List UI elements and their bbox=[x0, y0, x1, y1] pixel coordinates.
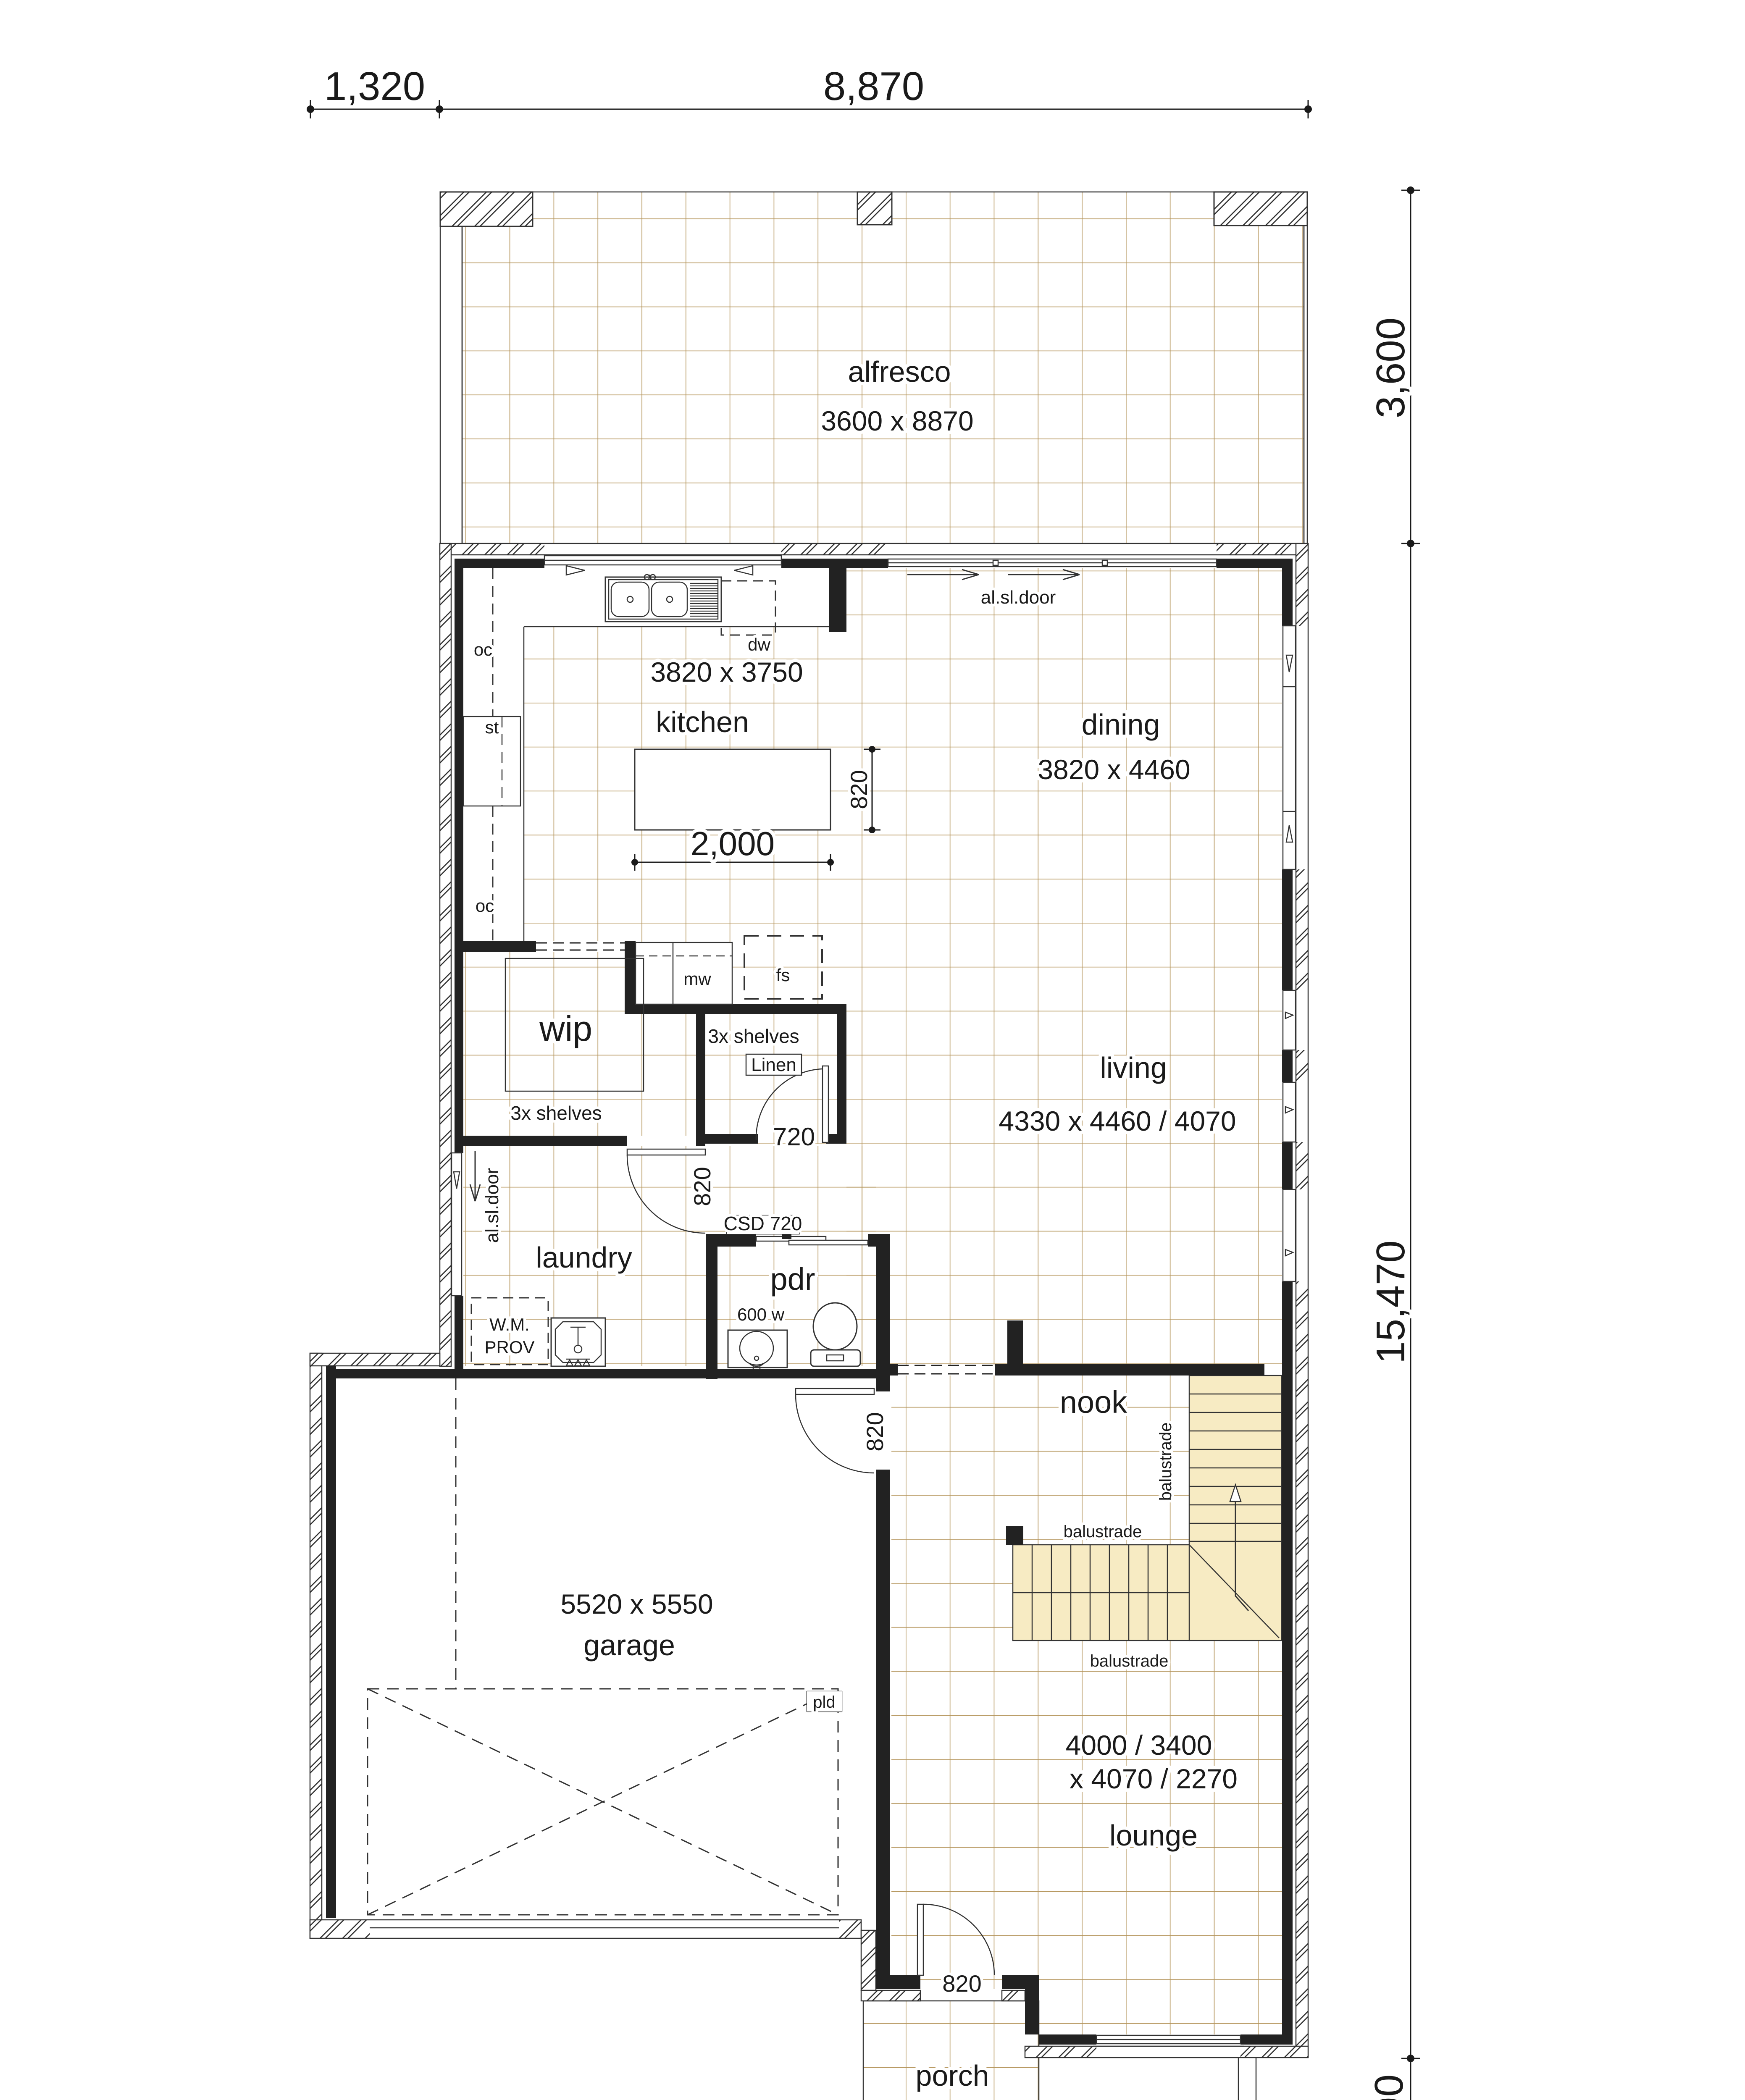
svg-text:3x shelves: 3x shelves bbox=[708, 1025, 799, 1047]
svg-text:3820 x 4460: 3820 x 4460 bbox=[1038, 754, 1190, 785]
svg-text:garage: garage bbox=[583, 1629, 675, 1662]
svg-text:porch: porch bbox=[915, 2059, 989, 2092]
svg-text:al.sl.door: al.sl.door bbox=[981, 587, 1056, 608]
svg-text:8,870: 8,870 bbox=[823, 64, 924, 109]
svg-text:720: 720 bbox=[773, 1123, 815, 1151]
svg-text:1,320: 1,320 bbox=[324, 64, 425, 109]
svg-text:Linen: Linen bbox=[751, 1055, 796, 1075]
svg-text:PROV: PROV bbox=[484, 1337, 534, 1357]
svg-text:mw: mw bbox=[683, 969, 711, 989]
svg-text:balustrade: balustrade bbox=[1090, 1652, 1169, 1670]
svg-text:2,000: 2,000 bbox=[691, 825, 775, 862]
svg-text:pld: pld bbox=[813, 1693, 835, 1711]
svg-text:wip: wip bbox=[539, 1009, 592, 1048]
svg-text:5520 x 5550: 5520 x 5550 bbox=[560, 1588, 713, 1620]
svg-text:laundry: laundry bbox=[536, 1241, 632, 1274]
svg-text:3,600: 3,600 bbox=[1368, 318, 1413, 418]
svg-text:15,470: 15,470 bbox=[1368, 1240, 1413, 1364]
svg-text:lounge: lounge bbox=[1109, 1819, 1198, 1852]
svg-text:alfresco: alfresco bbox=[848, 355, 951, 388]
svg-text:nook: nook bbox=[1060, 1385, 1127, 1420]
svg-text:kitchen: kitchen bbox=[656, 706, 749, 738]
svg-text:820: 820 bbox=[942, 1970, 981, 1997]
svg-text:820: 820 bbox=[846, 770, 872, 809]
svg-text:3600 x 8870: 3600 x 8870 bbox=[821, 405, 973, 436]
svg-text:balustrade: balustrade bbox=[1064, 1522, 1142, 1541]
svg-text:4330 x 4460 / 4070: 4330 x 4460 / 4070 bbox=[999, 1105, 1236, 1137]
svg-text:dw: dw bbox=[748, 635, 770, 654]
svg-text:pdr: pdr bbox=[770, 1262, 815, 1297]
svg-text:1,190: 1,190 bbox=[1367, 2074, 1411, 2100]
svg-text:oc: oc bbox=[474, 640, 492, 659]
svg-text:living: living bbox=[1100, 1051, 1167, 1084]
svg-text:dining: dining bbox=[1082, 708, 1160, 741]
svg-text:3x shelves: 3x shelves bbox=[510, 1102, 602, 1124]
svg-text:balustrade: balustrade bbox=[1156, 1423, 1175, 1501]
svg-text:820: 820 bbox=[862, 1412, 888, 1451]
svg-text:820: 820 bbox=[689, 1167, 715, 1206]
svg-text:fs: fs bbox=[776, 965, 790, 985]
svg-text:4000 / 3400: 4000 / 3400 bbox=[1066, 1730, 1212, 1761]
svg-text:3820 x 3750: 3820 x 3750 bbox=[650, 656, 803, 688]
svg-text:al.sl.door: al.sl.door bbox=[482, 1168, 502, 1243]
svg-text:600 w: 600 w bbox=[737, 1305, 785, 1324]
svg-text:st: st bbox=[485, 717, 499, 737]
svg-text:W.M.: W.M. bbox=[489, 1315, 530, 1334]
svg-text:x 4070 / 2270: x 4070 / 2270 bbox=[1070, 1763, 1238, 1794]
svg-text:oc: oc bbox=[476, 896, 494, 916]
svg-text:CSD 720: CSD 720 bbox=[724, 1213, 802, 1234]
